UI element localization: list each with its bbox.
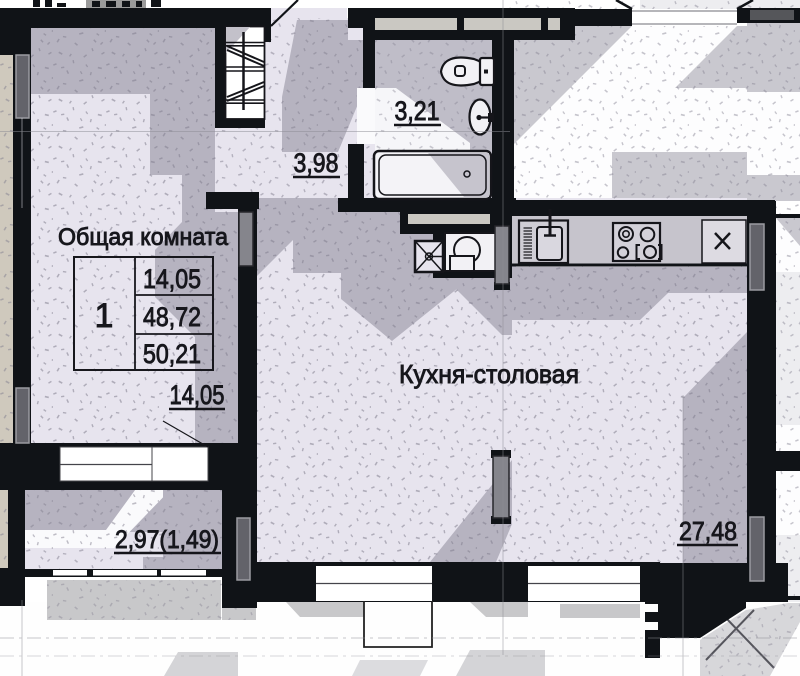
svg-text:50,21: 50,21: [143, 339, 201, 369]
svg-text:3,98: 3,98: [294, 148, 339, 178]
svg-text:Общая комната: Общая комната: [58, 224, 229, 251]
svg-text:2,97(1,49): 2,97(1,49): [115, 526, 219, 554]
svg-text:Кухня-столовая: Кухня-столовая: [399, 359, 579, 389]
svg-text:27,48: 27,48: [679, 516, 737, 546]
svg-text:1: 1: [95, 297, 114, 335]
svg-text:14,05: 14,05: [143, 264, 201, 294]
svg-text:48,72: 48,72: [143, 302, 201, 332]
svg-text:14,05: 14,05: [170, 380, 225, 410]
svg-text:3,21: 3,21: [395, 96, 440, 126]
